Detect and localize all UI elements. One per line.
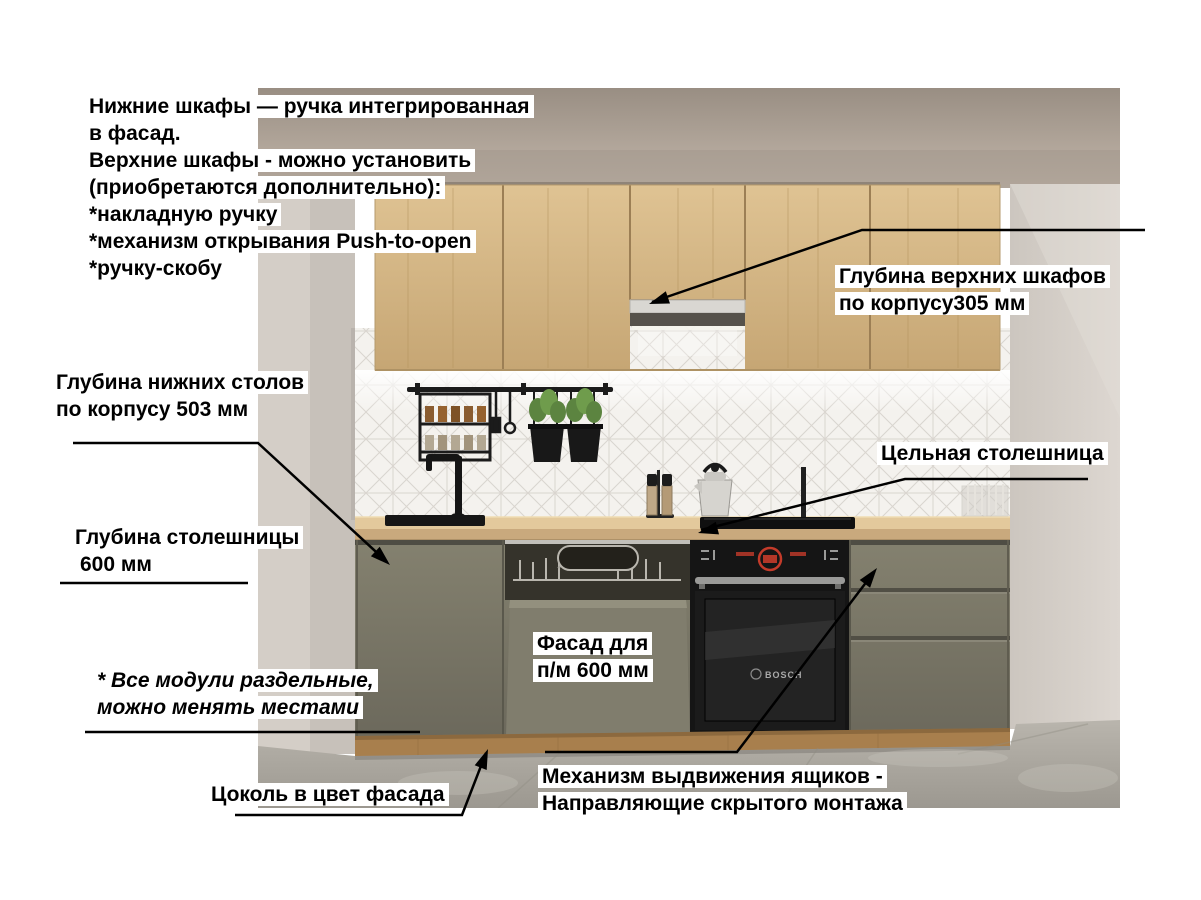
note-line: в фасад. [85, 122, 185, 145]
drawer-unit [850, 540, 1010, 736]
label-line: Цоколь в цвет фасада [207, 783, 449, 806]
label-line: п/м 600 мм [533, 659, 653, 682]
label-upper-cabinet-depth: Глубина верхних шкафов по корпусу305 мм [835, 263, 1110, 317]
note-handles-text: Нижние шкафы — ручка интегрированная в ф… [85, 93, 534, 282]
note-line: Верхние шкафы - можно установить [85, 149, 475, 172]
dishwasher-handle-recess [558, 546, 638, 570]
label-line: Глубина нижних столов [52, 371, 308, 394]
label-line: по корпусу 503 мм [52, 398, 252, 421]
drawer-gap [850, 588, 1010, 592]
note-line: Нижние шкафы — ручка интегрированная [85, 95, 534, 118]
annotated-kitchen-image: BOSCH [0, 0, 1201, 900]
note-line: *ручку-скобу [85, 257, 226, 280]
note-line: (приобретаются дополнительно): [85, 176, 445, 199]
label-plinth: Цоколь в цвет фасада [207, 781, 449, 808]
svg-text:BOSCH: BOSCH [765, 670, 803, 680]
salt-pepper-mills [646, 470, 674, 518]
pepper-grinder [801, 467, 806, 518]
note-line: *механизм открывания Push-to-open [85, 230, 476, 253]
label-line: Глубина столешницы [71, 526, 303, 549]
dish-rack [962, 484, 1008, 516]
label-line: Фасад для [533, 632, 652, 655]
label-line: Механизм выдвижения ящиков - [538, 765, 887, 788]
label-line: по корпусу305 мм [835, 292, 1029, 315]
label-line: * Все модули раздельные, [93, 669, 378, 692]
label-solid-countertop: Цельная столешница [877, 440, 1108, 467]
label-line: 600 мм [76, 553, 156, 576]
oven: BOSCH [690, 540, 850, 736]
label-countertop-depth: Глубина столешницы 600 мм [71, 524, 303, 578]
label-line: Направляющие скрытого монтажа [538, 792, 907, 815]
sink [385, 515, 485, 526]
note-line: *накладную ручку [85, 203, 281, 226]
label-dishwasher-facade: Фасад для п/м 600 мм [533, 630, 653, 684]
label-line: Глубина верхних шкафов [835, 265, 1110, 288]
label-drawer-mechanism: Механизм выдвижения ящиков - Направляющи… [538, 763, 907, 817]
oven-handle [695, 577, 845, 584]
label-line: можно менять местами [93, 696, 363, 719]
label-line: Цельная столешница [877, 442, 1108, 465]
drawer-gap [850, 636, 1010, 640]
range-hood [630, 300, 745, 356]
label-base-cabinet-depth: Глубина нижних столов по корпусу 503 мм [52, 369, 308, 423]
label-modules-note: * Все модули раздельные, можно менять ме… [93, 667, 378, 721]
